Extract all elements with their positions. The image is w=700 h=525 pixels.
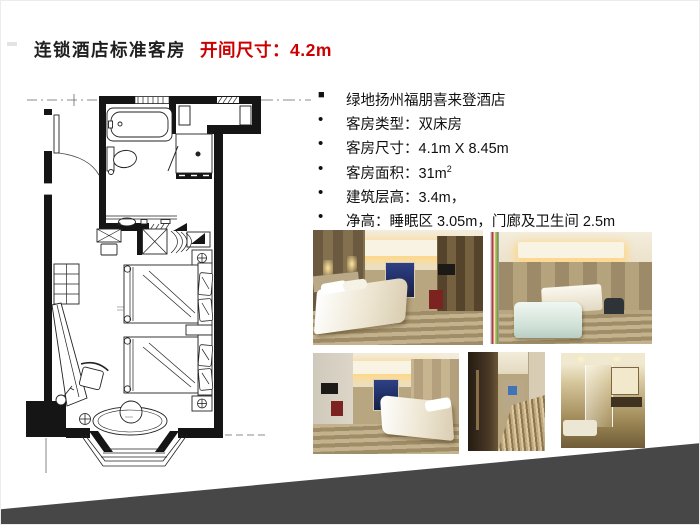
- spec-text: 客房类型：双床房: [346, 109, 462, 136]
- spec-text: 建筑层高：3.4m，: [346, 182, 465, 209]
- dot-bullet-icon: •: [313, 109, 346, 131]
- spec-text: 客房面积：31m2: [346, 158, 452, 185]
- slide: 连锁酒店标准客房 开间尺寸：4.2m ■ 绿地扬州福朋喜来登酒店 • 客房类型：…: [0, 0, 700, 525]
- spotlight-glow: [613, 356, 621, 362]
- door-trim: [476, 370, 479, 430]
- tv-screen: [321, 383, 338, 394]
- bathtub-ledge: [563, 420, 597, 436]
- square-bullet-icon: ■: [313, 85, 346, 106]
- spec-text: 绿地扬州福朋喜来登酒店: [346, 85, 506, 112]
- dot-bullet-icon: •: [313, 158, 346, 180]
- list-item: • 建筑层高：3.4m，: [313, 182, 685, 206]
- list-item: • 客房面积：31m2: [313, 158, 685, 182]
- dot-bullet-icon: •: [313, 182, 346, 204]
- spec-text: 客房尺寸：4.1m X 8.45m: [346, 133, 509, 160]
- photo-bedroom-night: [313, 230, 483, 345]
- mirror: [611, 367, 639, 395]
- vanity-counter: [611, 397, 642, 407]
- photo-corridor: [468, 352, 545, 451]
- tv-screen: [438, 264, 455, 275]
- sconce-glow: [347, 256, 357, 272]
- red-cabinet: [429, 290, 443, 309]
- list-item: ■ 绿地扬州福朋喜来登酒店: [313, 85, 685, 109]
- mint-sofa: [514, 302, 582, 338]
- list-item: • 客房尺寸：4.1m X 8.45m: [313, 133, 685, 157]
- floor-plan: [21, 83, 313, 483]
- spec-list: ■ 绿地扬州福朋喜来登酒店 • 客房类型：双床房 • 客房尺寸：4.1m X 8…: [313, 85, 685, 230]
- right-wall-panels: [437, 236, 483, 316]
- dot-bullet-icon: •: [313, 206, 346, 228]
- list-item: • 客房类型：双床房: [313, 109, 685, 133]
- page-title: 连锁酒店标准客房: [34, 37, 186, 62]
- dimension-label: 开间尺寸：4.2m: [200, 37, 332, 62]
- edge-artifact: [7, 42, 17, 46]
- stripe-accent: [490, 232, 499, 344]
- list-item: • 净高：睡眠区 3.05m，门廊及卫生间 2.5m: [313, 206, 685, 230]
- glass-shower: [585, 365, 613, 427]
- photo-bathroom: [561, 353, 645, 448]
- spec-text: 净高：睡眠区 3.05m，门廊及卫生间 2.5m: [346, 206, 615, 233]
- photo-bedroom-sofa: [490, 232, 652, 344]
- artwork: [508, 386, 517, 395]
- spotlight-glow: [577, 356, 585, 362]
- wood-panel-wall: [468, 352, 498, 451]
- dot-bullet-icon: •: [313, 133, 346, 155]
- red-cabinet: [331, 401, 343, 416]
- photo-bedroom-angle: [313, 353, 459, 454]
- cove-light: [518, 242, 624, 258]
